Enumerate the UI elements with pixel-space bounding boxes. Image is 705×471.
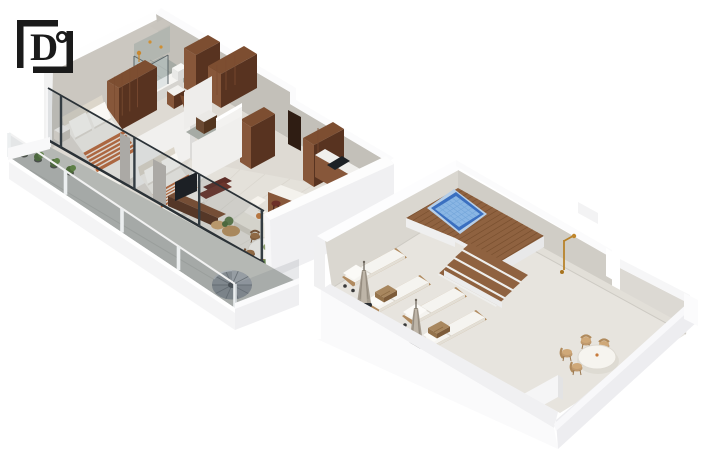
svg-text:D: D xyxy=(30,26,58,69)
